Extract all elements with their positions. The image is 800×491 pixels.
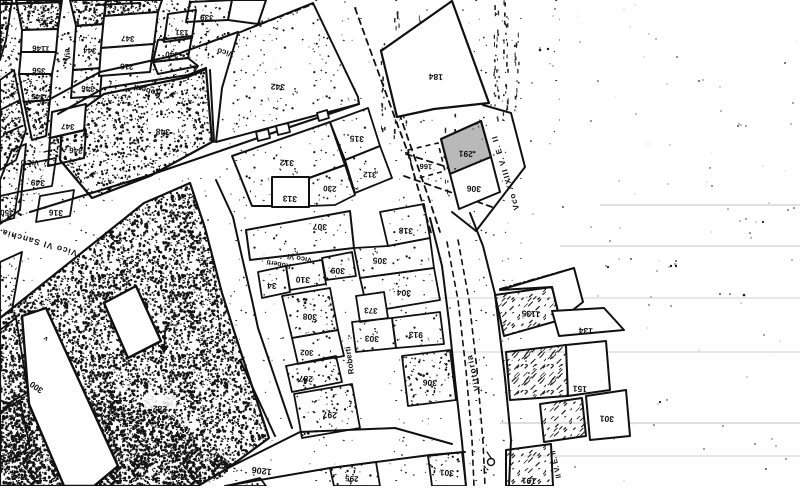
svg-text:166: 166 bbox=[419, 162, 432, 172]
svg-text:346: 346 bbox=[68, 146, 82, 156]
svg-text:342: 342 bbox=[270, 82, 285, 93]
svg-text:308: 308 bbox=[302, 312, 317, 323]
svg-text:287: 287 bbox=[298, 374, 313, 385]
svg-text:310: 310 bbox=[295, 275, 310, 286]
svg-text:312: 312 bbox=[279, 158, 294, 169]
svg-text:318: 318 bbox=[398, 226, 413, 237]
svg-text:347: 347 bbox=[60, 122, 74, 132]
svg-text:184: 184 bbox=[428, 72, 443, 83]
svg-text:344: 344 bbox=[82, 46, 96, 56]
svg-text:312: 312 bbox=[362, 170, 376, 180]
svg-text:306: 306 bbox=[422, 378, 437, 389]
svg-text:34: 34 bbox=[267, 281, 277, 291]
svg-text:291: 291 bbox=[458, 149, 473, 160]
svg-text:313: 313 bbox=[282, 194, 297, 205]
svg-text:301: 301 bbox=[439, 468, 454, 479]
svg-text:373: 373 bbox=[363, 306, 377, 316]
svg-text:348: 348 bbox=[155, 127, 170, 138]
svg-text:305: 305 bbox=[372, 256, 387, 267]
svg-text:301: 301 bbox=[599, 414, 614, 425]
svg-text:295: 295 bbox=[344, 474, 358, 484]
svg-text:315: 315 bbox=[349, 134, 364, 145]
svg-text:349: 349 bbox=[30, 178, 45, 189]
svg-text:Via: Via bbox=[62, 47, 73, 61]
svg-text:306: 306 bbox=[466, 184, 481, 195]
svg-text:307: 307 bbox=[312, 222, 327, 233]
svg-text:303: 303 bbox=[364, 334, 379, 345]
svg-text:297: 297 bbox=[322, 410, 337, 421]
svg-text:151: 151 bbox=[572, 384, 587, 395]
svg-text:346: 346 bbox=[80, 84, 94, 94]
svg-text:230: 230 bbox=[322, 184, 336, 194]
svg-text:309: 309 bbox=[330, 266, 345, 277]
svg-text:282: 282 bbox=[152, 404, 167, 415]
svg-text:347: 347 bbox=[120, 34, 134, 44]
svg-text:191: 191 bbox=[521, 476, 536, 486]
svg-text:316: 316 bbox=[48, 208, 63, 219]
svg-text:302: 302 bbox=[299, 348, 313, 358]
svg-text:304: 304 bbox=[396, 288, 411, 299]
svg-text:134: 134 bbox=[578, 326, 593, 337]
svg-text:350: 350 bbox=[0, 208, 14, 218]
svg-text:339: 339 bbox=[199, 13, 213, 23]
svg-text:913: 913 bbox=[408, 330, 423, 341]
svg-text:1135: 1135 bbox=[521, 309, 540, 320]
